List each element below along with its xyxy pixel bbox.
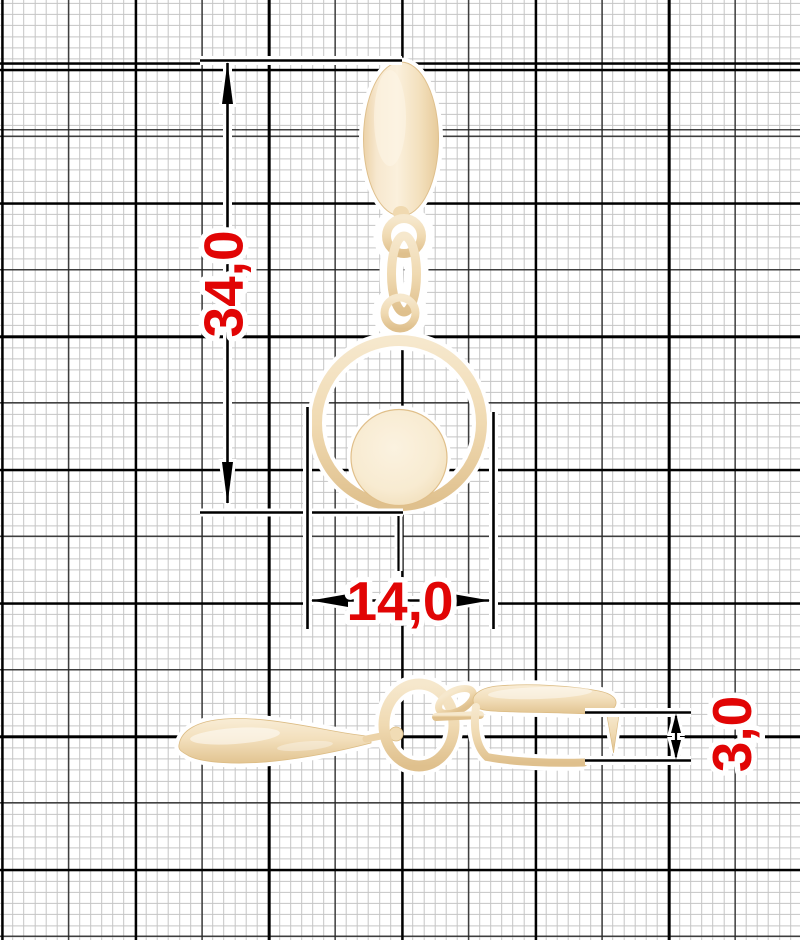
- drawing-sheet: 34,0 14,0: [0, 0, 800, 940]
- dim34-label: 34,0: [193, 230, 255, 337]
- technical-drawing: 34,0 14,0: [0, 0, 800, 940]
- dim3-label: 3,0: [701, 696, 763, 772]
- side-view: [179, 683, 619, 766]
- front-view: [317, 62, 482, 506]
- dim14-label: 14,0: [346, 570, 453, 632]
- center-disc: [351, 410, 447, 506]
- ear-post-highlight: [374, 70, 406, 166]
